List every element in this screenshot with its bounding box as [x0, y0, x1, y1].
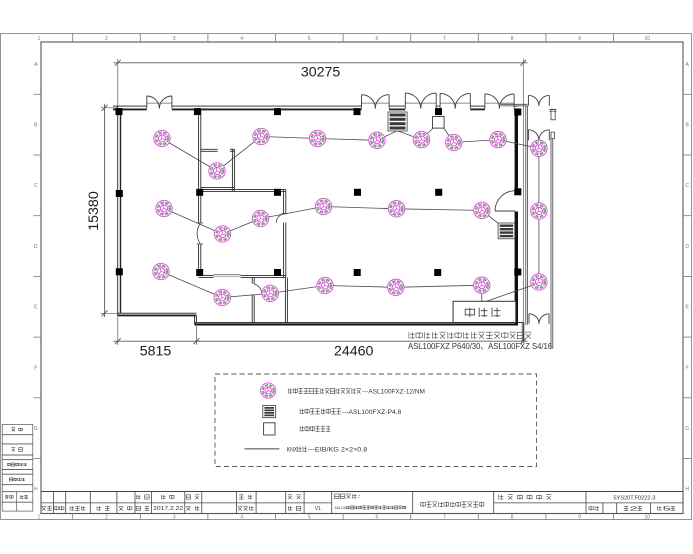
- svg-text:9: 9: [578, 514, 581, 520]
- svg-text:4: 4: [240, 514, 243, 520]
- svg-text:10: 10: [645, 514, 651, 520]
- svg-text:ASL100: ASL100: [335, 505, 348, 510]
- svg-text:C: C: [685, 183, 689, 189]
- svg-text:8: 8: [511, 36, 514, 42]
- svg-text:KNX: KNX: [287, 447, 298, 454]
- svg-text:2: 2: [105, 514, 108, 520]
- svg-text:---ASL100FXZ-P4.8: ---ASL100FXZ-P4.8: [342, 409, 402, 416]
- svg-text:5: 5: [308, 514, 311, 520]
- svg-text:2: 2: [105, 36, 108, 42]
- svg-text:F: F: [34, 365, 37, 371]
- svg-text:V1: V1: [315, 506, 321, 512]
- svg-text:2017.2.22: 2017.2.22: [153, 506, 183, 512]
- svg-text:30275: 30275: [301, 64, 341, 80]
- svg-text:5: 5: [663, 506, 671, 512]
- svg-text:H: H: [34, 487, 38, 493]
- svg-text:7: 7: [443, 514, 446, 520]
- svg-text:1: 1: [38, 36, 41, 42]
- svg-text:5YS20T.F0222-3: 5YS20T.F0222-3: [614, 495, 656, 501]
- svg-text:1: 1: [38, 514, 41, 520]
- svg-text:7: 7: [443, 36, 446, 42]
- svg-text:---EIB/KG 2×2×0.8: ---EIB/KG 2×2×0.8: [308, 447, 368, 454]
- svg-text:5: 5: [308, 36, 311, 42]
- svg-text:D: D: [685, 244, 689, 250]
- svg-text:2: 2: [630, 506, 638, 512]
- svg-text:4: 4: [240, 36, 243, 42]
- svg-text:15380: 15380: [86, 191, 102, 231]
- svg-text:ASL100FXZ P640/30、ASL100FXZ S4: ASL100FXZ P640/30、ASL100FXZ S4/16: [408, 341, 552, 351]
- svg-text:5815: 5815: [140, 343, 172, 359]
- svg-text:8: 8: [511, 514, 514, 520]
- svg-text:6: 6: [376, 36, 379, 42]
- svg-text:H: H: [685, 487, 689, 493]
- svg-text:G: G: [685, 426, 689, 432]
- svg-text:---ASL100FXZ-12/NM: ---ASL100FXZ-12/NM: [362, 388, 425, 395]
- svg-text:F: F: [686, 365, 689, 371]
- svg-text:G: G: [34, 426, 38, 432]
- svg-text:10: 10: [645, 36, 651, 42]
- svg-text:3: 3: [173, 514, 176, 520]
- svg-text:9: 9: [578, 36, 581, 42]
- svg-text:D: D: [34, 244, 38, 250]
- svg-text:24460: 24460: [334, 343, 374, 359]
- svg-text:C: C: [34, 183, 38, 189]
- svg-text:3: 3: [173, 36, 176, 42]
- svg-text:6: 6: [376, 514, 379, 520]
